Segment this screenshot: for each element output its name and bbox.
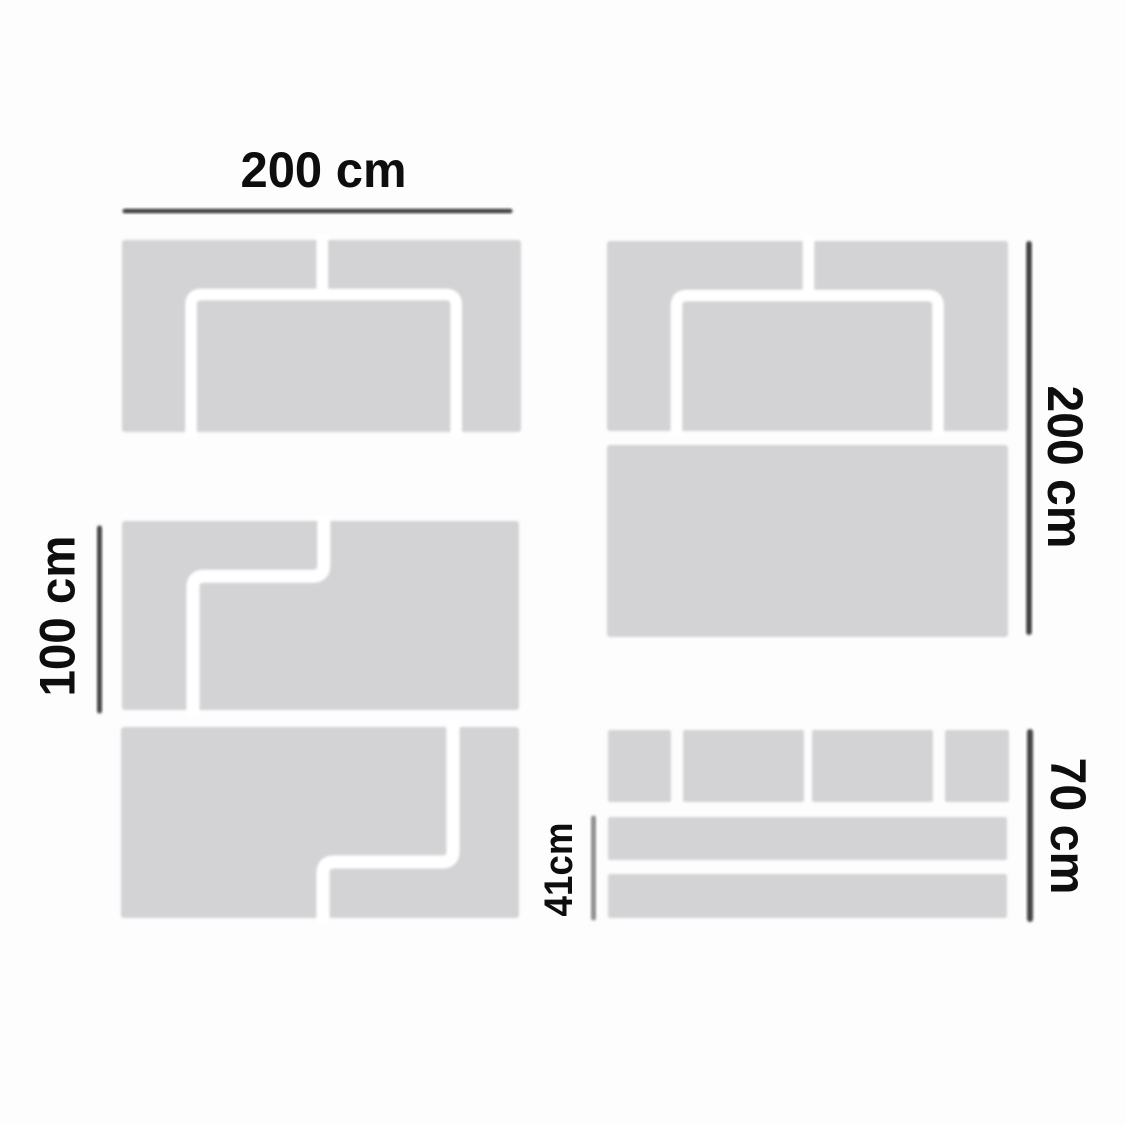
svg-text:200 cm: 200 cm bbox=[241, 142, 407, 198]
svg-text:41cm: 41cm bbox=[537, 823, 581, 917]
svg-text:70 cm: 70 cm bbox=[1040, 758, 1096, 895]
svg-text:200 cm: 200 cm bbox=[1037, 386, 1093, 549]
svg-text:100 cm: 100 cm bbox=[30, 536, 86, 697]
